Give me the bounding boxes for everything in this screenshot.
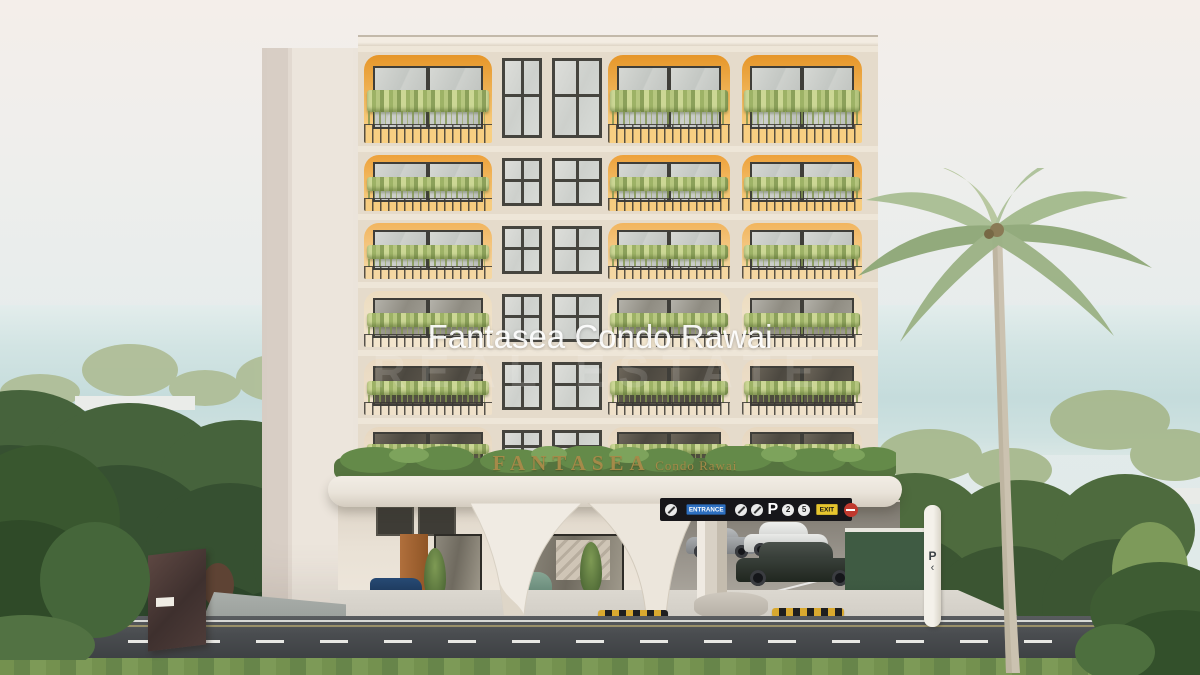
balcony-railing — [742, 198, 862, 211]
building-name-sign: FANTASEA Condo Rawai — [334, 451, 896, 476]
stairwell-window — [502, 294, 542, 342]
balcony-railing — [742, 402, 862, 415]
balcony-bay — [608, 155, 730, 211]
balcony-bay — [608, 223, 730, 279]
hanging-plants — [610, 313, 727, 327]
badge-5-icon: 5 — [798, 504, 810, 516]
no-horn-icon — [665, 504, 677, 516]
floor-level-7 — [358, 46, 878, 146]
foreground-bush-left — [0, 430, 175, 660]
roof-parapet — [358, 35, 878, 46]
stairwell-window — [552, 226, 602, 274]
plant-tendrils — [368, 111, 488, 124]
stairwell-window — [552, 294, 602, 342]
hanging-plants — [744, 313, 859, 327]
balcony-railing — [608, 266, 730, 279]
hanging-plants — [610, 381, 727, 395]
balcony-railing — [608, 402, 730, 415]
balcony-bay — [608, 359, 730, 415]
plant-tendrils — [746, 111, 859, 124]
stairwell-window — [502, 58, 542, 138]
hanging-plants — [367, 381, 490, 395]
balcony-bay — [608, 55, 730, 143]
balcony-bay — [364, 359, 492, 415]
balcony-railing — [364, 334, 492, 347]
parking-symbol: P — [767, 502, 778, 518]
balcony-railing — [608, 124, 730, 143]
no-littering-icon — [751, 504, 763, 516]
balcony-railing — [742, 124, 862, 143]
architectural-rendering: FANTASEA Condo Rawai — [0, 0, 1200, 675]
hanging-plants — [610, 90, 727, 112]
balcony-railing — [364, 198, 492, 211]
hanging-plants — [744, 90, 859, 112]
entrance-label: ENTRANCE — [687, 504, 726, 514]
lobby-window — [418, 506, 456, 536]
parking-sign-bar: ENTRANCE P 2 5 EXIT — [660, 498, 852, 521]
balcony-railing — [742, 334, 862, 347]
balcony-bay — [742, 223, 862, 279]
plant-tendrils — [612, 111, 727, 124]
brand-text: FANTASEA — [493, 451, 651, 475]
balcony-bay — [364, 55, 492, 143]
balcony-railing — [364, 266, 492, 279]
condo-building-facade — [358, 35, 878, 470]
balcony-railing — [364, 124, 492, 143]
brand-suffix-text: Condo Rawai — [655, 458, 737, 473]
balcony-railing — [742, 266, 862, 279]
balcony-bay — [742, 55, 862, 143]
floor-level-6 — [358, 146, 878, 214]
floor-level-4 — [358, 282, 878, 350]
hanging-plants — [367, 177, 490, 191]
hanging-plants — [610, 245, 727, 259]
balcony-bay — [364, 155, 492, 211]
balcony-bay — [742, 291, 862, 347]
hanging-plants — [744, 381, 859, 395]
floor-level-5 — [358, 214, 878, 282]
balcony-railing — [608, 334, 730, 347]
stairwell-window — [552, 58, 602, 138]
balcony-railing — [608, 198, 730, 211]
balcony-bay — [364, 223, 492, 279]
no-smoking-icon — [735, 504, 747, 516]
stairwell-window — [552, 158, 602, 206]
balcony-bay — [608, 291, 730, 347]
balcony-floors — [358, 46, 878, 472]
balcony-bay — [364, 291, 492, 347]
badge-2-icon: 2 — [782, 504, 794, 516]
hanging-plants — [367, 313, 490, 327]
hanging-plants — [610, 177, 727, 191]
hanging-plants — [367, 245, 490, 259]
hanging-plants — [744, 177, 859, 191]
lobby-window — [376, 506, 414, 536]
hanging-plants — [744, 245, 859, 259]
balcony-railing — [364, 402, 492, 415]
stairwell-window — [552, 362, 602, 410]
exit-label: EXIT — [816, 504, 837, 515]
stairwell-window — [502, 158, 542, 206]
balcony-bay — [742, 359, 862, 415]
balcony-bay — [742, 155, 862, 211]
foreground-bush-right — [1040, 560, 1200, 675]
floor-level-3 — [358, 350, 878, 418]
stairwell-window — [502, 362, 542, 410]
stairwell-window — [502, 226, 542, 274]
hanging-plants — [367, 90, 490, 112]
